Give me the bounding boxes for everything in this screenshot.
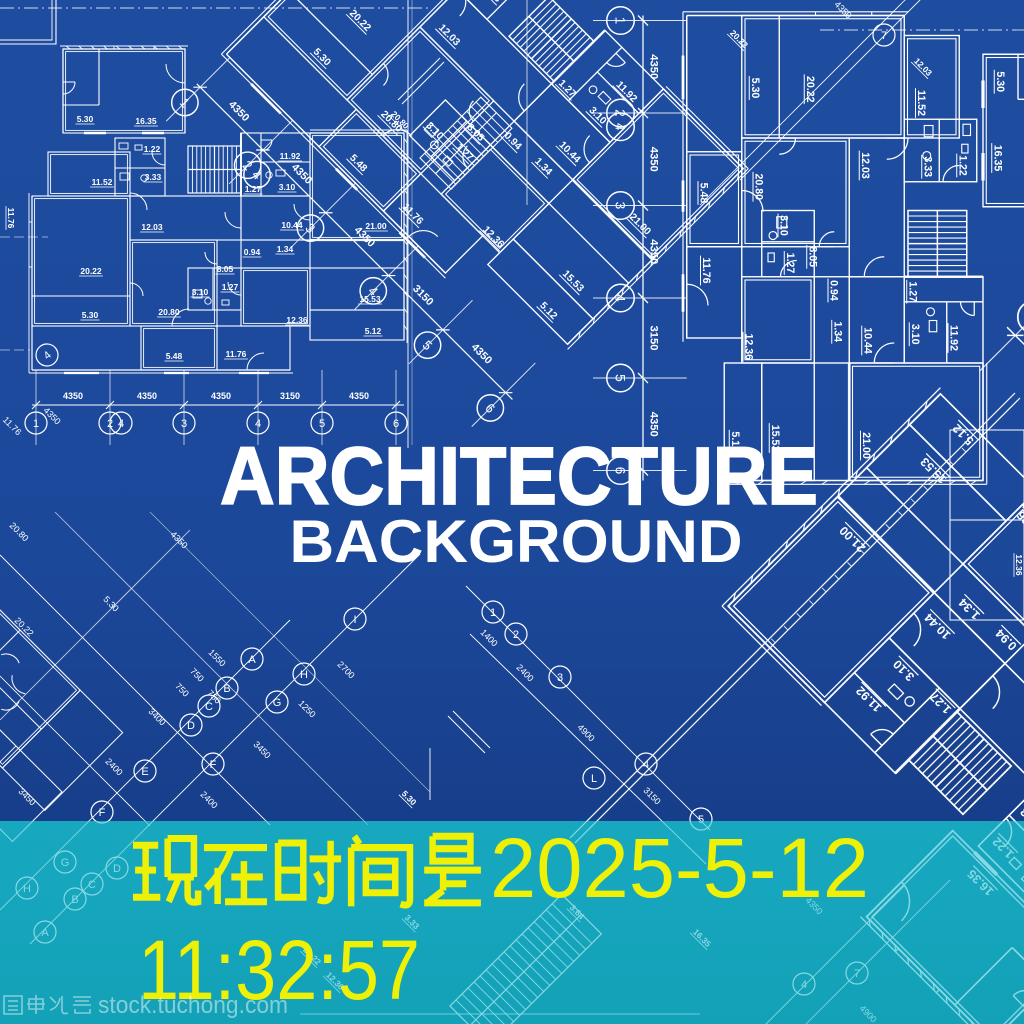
svg-text:BACKGROUND: BACKGROUND [290,508,743,575]
svg-text:2025-5-12: 2025-5-12 [490,821,869,915]
svg-text:stock.tuchong.com: stock.tuchong.com [98,992,288,1019]
